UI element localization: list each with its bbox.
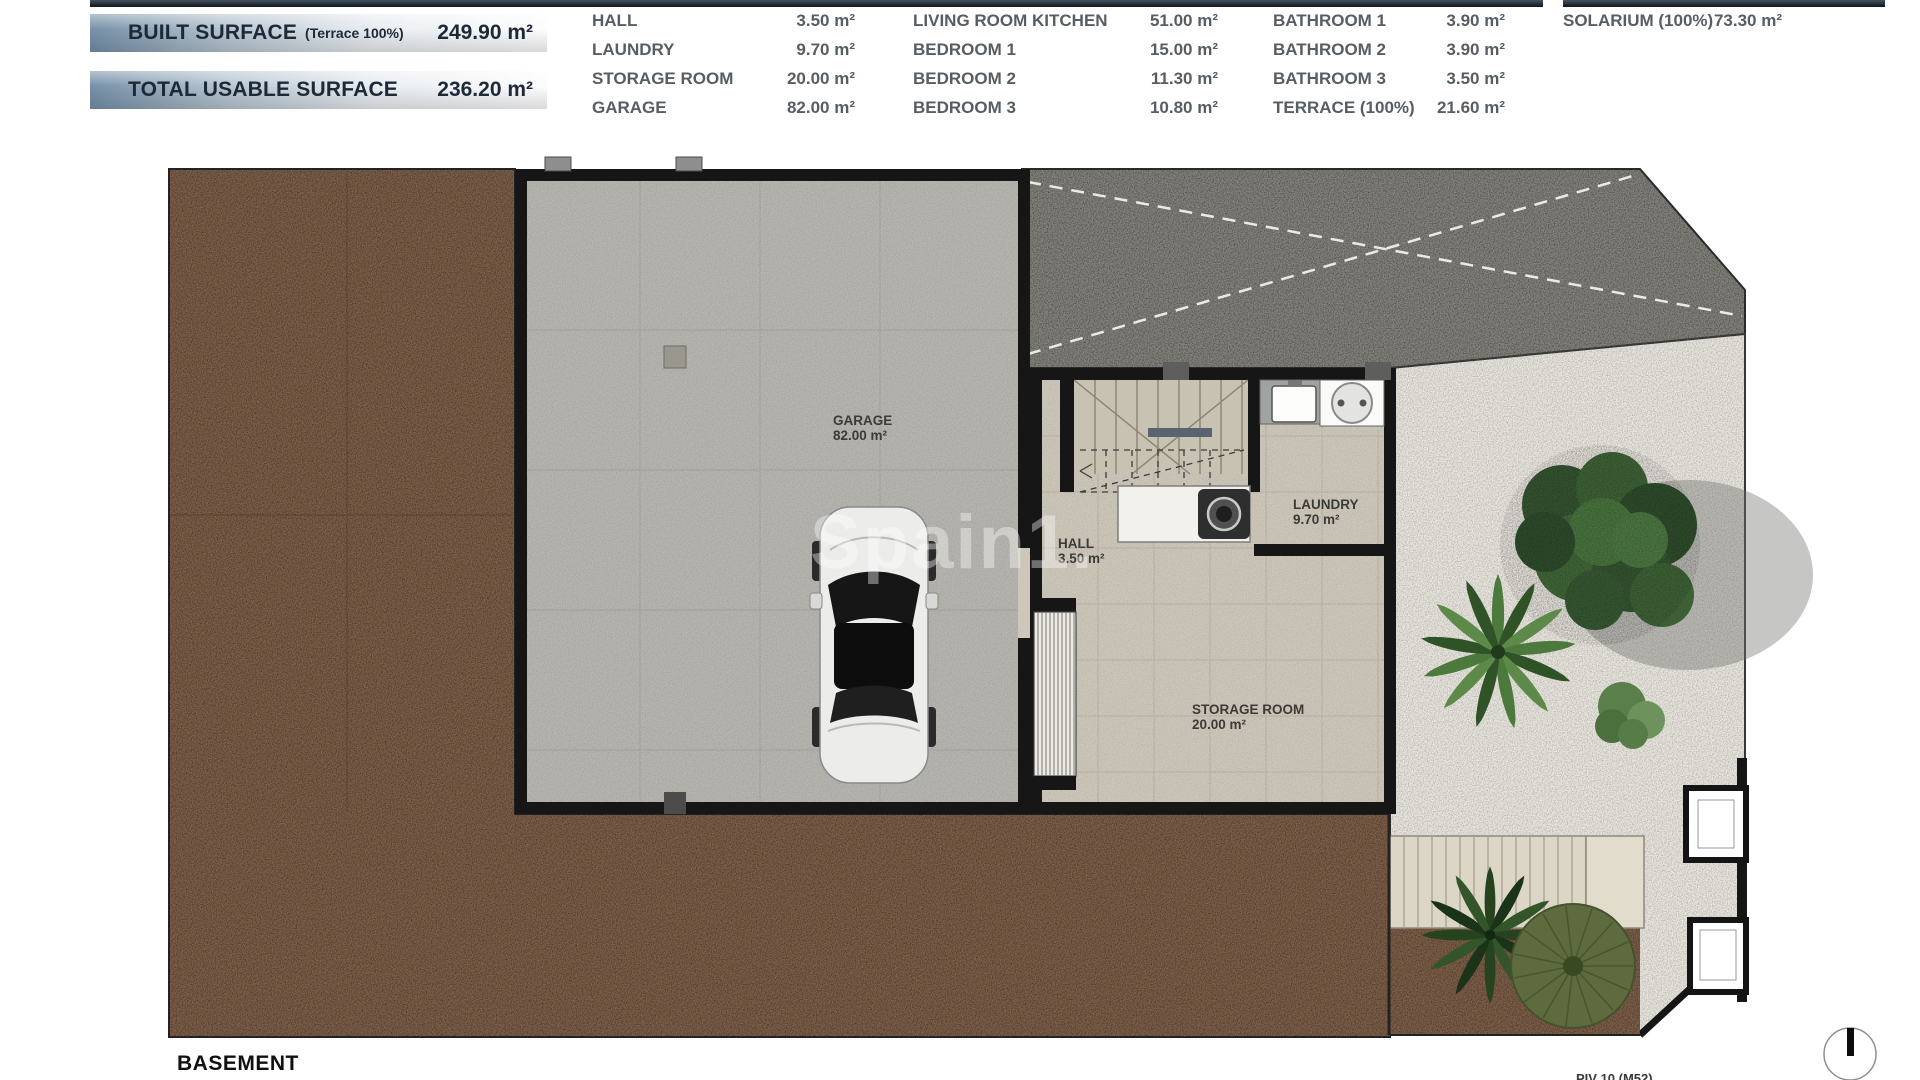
car-mirror: [926, 593, 938, 609]
floor-plan: GARAGE 82.00 m² HALL 3.50 m² LAUNDRY 9.7…: [0, 0, 1920, 1080]
utility-block: [1030, 362, 1396, 814]
storage-shelving: [1034, 598, 1076, 790]
floorplan-page: BUILT SURFACE (Terrace 100%) 249.90 m² T…: [0, 0, 1920, 1080]
car-roof: [834, 623, 914, 689]
wall-pillar: [545, 157, 571, 171]
laundry-label: LAUNDRY: [1293, 497, 1359, 512]
interior-wall: [1248, 380, 1260, 492]
garage-area: 82.00 m²: [833, 428, 888, 443]
sink: [1272, 386, 1316, 422]
driveway: [1022, 169, 1745, 368]
faucet: [1288, 380, 1302, 387]
column: [664, 346, 686, 368]
storage-label: STORAGE ROOM: [1192, 702, 1304, 717]
wall-pillar: [676, 157, 702, 171]
shrub-round: [1511, 904, 1635, 1028]
interior-wall: [1254, 544, 1396, 556]
washer-area: [1118, 486, 1250, 542]
light-well-2: [1690, 920, 1746, 992]
laundry-area: 9.70 m²: [1293, 512, 1340, 527]
laundry-fixtures: [1260, 380, 1384, 426]
storage-area: 20.00 m²: [1192, 717, 1247, 732]
car-mirror: [810, 593, 822, 609]
plan-reference-note: PIV 10 (M52): [1576, 1071, 1653, 1080]
watermark: Spain1.: [810, 500, 1094, 585]
wall-pillar: [664, 792, 686, 814]
tree-large: [1500, 445, 1700, 645]
wall-pillar: [1163, 362, 1189, 380]
interior-wall: [1060, 380, 1074, 492]
compass-icon: [1824, 1028, 1876, 1080]
wall-pillar: [1365, 362, 1391, 380]
garage-label: GARAGE: [833, 413, 892, 428]
floor-title: BASEMENT: [177, 1052, 299, 1076]
light-well-1: [1686, 788, 1746, 860]
